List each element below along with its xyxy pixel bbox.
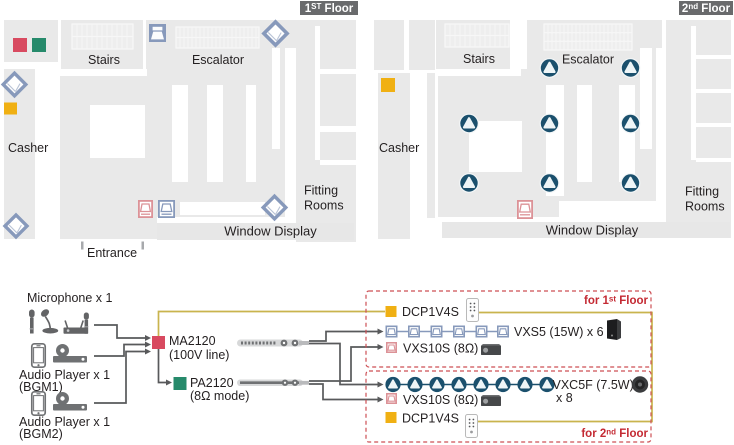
svg-text:VXS5 (15W) x 6: VXS5 (15W) x 6 — [514, 325, 604, 339]
svg-text:VXS10S (8Ω): VXS10S (8Ω) — [403, 342, 478, 356]
svg-text:VXC5F (7.5W): VXC5F (7.5W) — [553, 378, 634, 392]
svg-text:Rooms: Rooms — [685, 200, 725, 214]
svg-text:Fitting: Fitting — [304, 184, 338, 198]
svg-text:Window Display: Window Display — [224, 224, 317, 239]
svg-text:Stairs: Stairs — [88, 53, 120, 67]
svg-text:for 1st Floor: for 1st Floor — [584, 295, 649, 308]
svg-text:(8Ω mode): (8Ω mode) — [190, 389, 249, 403]
svg-text:Stairs: Stairs — [463, 52, 495, 66]
svg-text:Casher: Casher — [379, 141, 419, 155]
svg-text:Microphone x 1: Microphone x 1 — [27, 291, 113, 305]
svg-text:Rooms: Rooms — [304, 199, 344, 213]
svg-text:Escalator: Escalator — [192, 53, 244, 67]
svg-text:Entrance: Entrance — [87, 246, 137, 260]
svg-text:VXS10S (8Ω): VXS10S (8Ω) — [403, 393, 478, 407]
svg-text:PA2120: PA2120 — [190, 376, 234, 390]
svg-text:(BGM2): (BGM2) — [19, 427, 63, 441]
svg-text:Window Display: Window Display — [546, 223, 639, 238]
svg-text:DCP1V4S: DCP1V4S — [402, 412, 459, 426]
svg-text:Escalator: Escalator — [562, 53, 614, 67]
svg-text:(100V line): (100V line) — [169, 348, 229, 362]
svg-text:for 2nd Floor: for 2nd Floor — [581, 428, 648, 441]
svg-text:Casher: Casher — [8, 141, 48, 155]
svg-text:MA2120: MA2120 — [169, 334, 216, 348]
svg-text:Fitting: Fitting — [685, 185, 719, 199]
svg-text:DCP1V4S: DCP1V4S — [402, 305, 459, 319]
svg-text:x 8: x 8 — [556, 391, 573, 405]
